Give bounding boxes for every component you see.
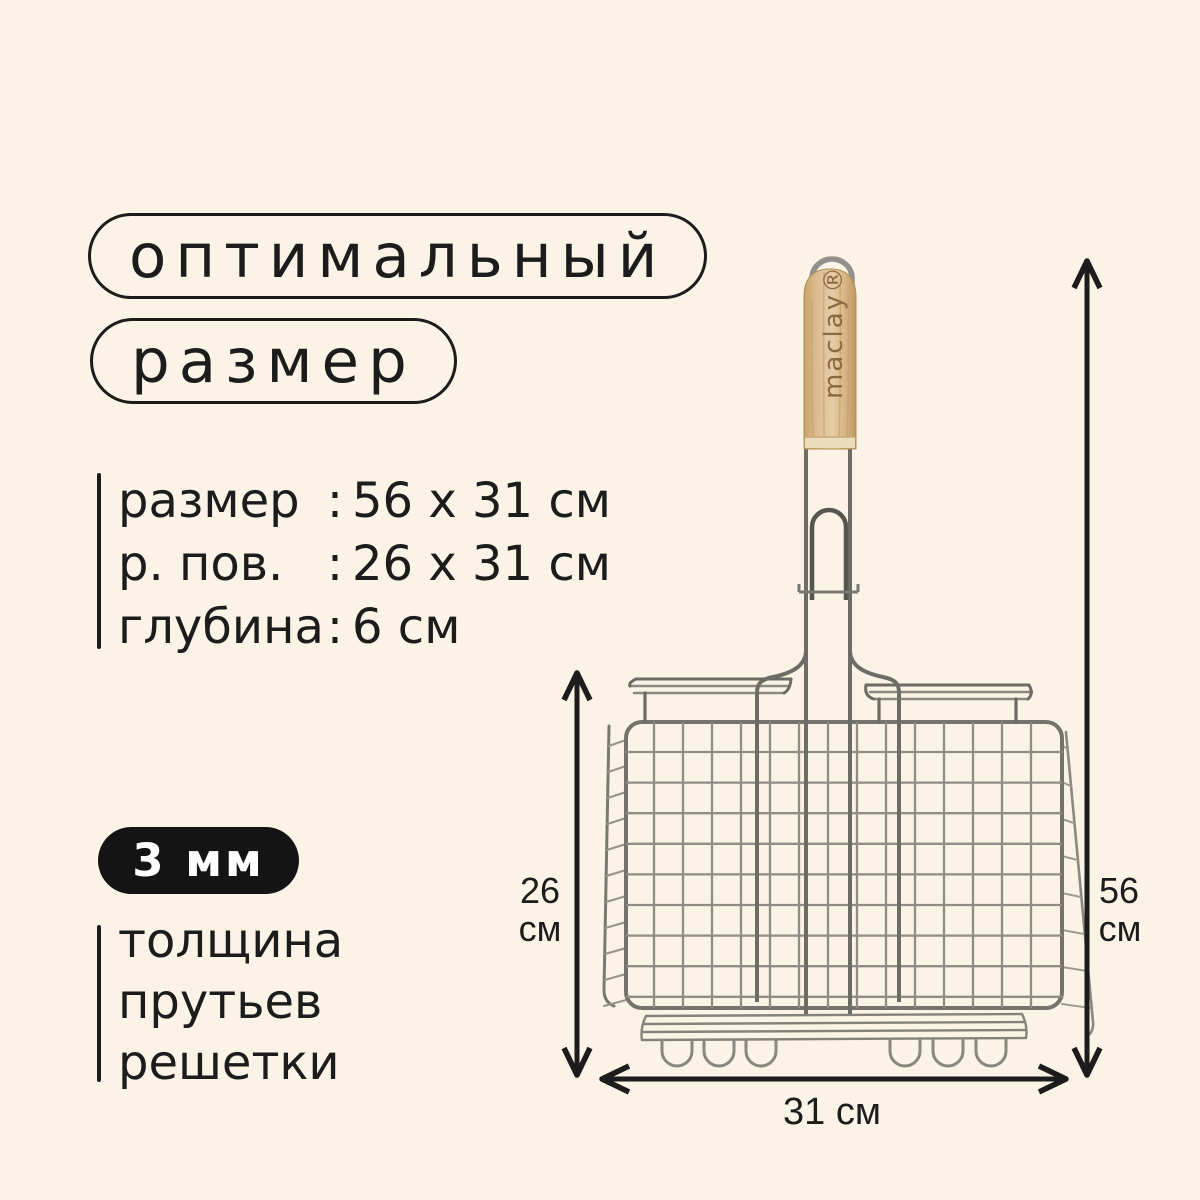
arrow-total-height — [1074, 261, 1100, 1075]
arrow-width — [602, 1066, 1066, 1092]
handle-end-cap — [805, 437, 855, 448]
dim-grate-height-unit: см — [519, 908, 562, 949]
lock-slider-loop — [812, 510, 846, 600]
dim-width-label: 31 см — [783, 1091, 881, 1133]
brand-logo-text: maclay® — [819, 265, 849, 399]
dim-grate-height-value: 26 — [520, 870, 560, 911]
dimension-labels: 26 см 56 см 31 см — [519, 870, 1142, 1133]
product-illustration: maclay® 26 с — [0, 0, 1200, 1200]
grate-mesh — [627, 723, 1061, 1007]
grate-top-bars — [630, 679, 1032, 722]
arrow-grate-height — [564, 673, 590, 1075]
grate-bottom-band — [642, 1014, 1027, 1040]
grate-prongs — [662, 1040, 1006, 1066]
dim-total-height-unit: см — [1099, 908, 1142, 949]
grate-left-wall-edge — [604, 726, 614, 1006]
product-infographic: оптимальный размер размер : 56 x 31 см р… — [0, 0, 1200, 1200]
dim-total-height-value: 56 — [1099, 870, 1139, 911]
